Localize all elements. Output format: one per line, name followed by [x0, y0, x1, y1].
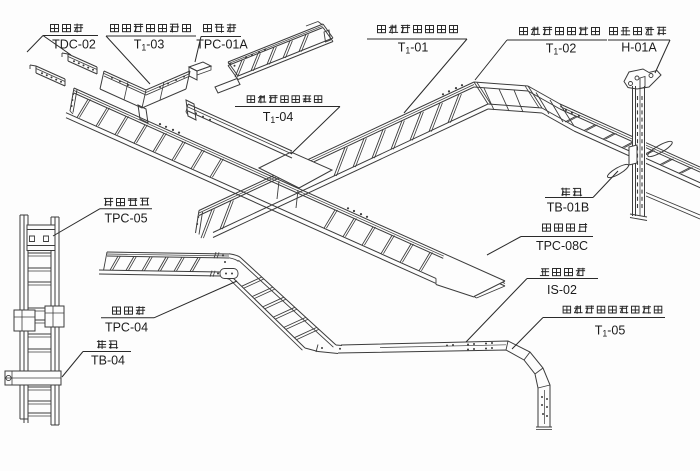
svg-text:TB-04: TB-04: [91, 354, 125, 368]
svg-text:TB-01B: TB-01B: [547, 201, 589, 215]
svg-text:T1-01: T1-01: [398, 41, 429, 56]
svg-text:T1-03: T1-03: [134, 38, 165, 53]
svg-text:T1-05: T1-05: [595, 324, 626, 339]
svg-text:H-01A: H-01A: [621, 41, 657, 55]
svg-text:IS-02: IS-02: [547, 283, 577, 297]
svg-text:T1-02: T1-02: [546, 42, 577, 57]
svg-text:TDC-02: TDC-02: [52, 38, 96, 52]
svg-text:TPC-05: TPC-05: [104, 212, 147, 226]
svg-text:TPC-08C: TPC-08C: [536, 239, 588, 253]
svg-text:TPC-04: TPC-04: [105, 321, 148, 335]
svg-text:TPC-01A: TPC-01A: [196, 38, 248, 52]
svg-text:T1-04: T1-04: [263, 110, 294, 125]
